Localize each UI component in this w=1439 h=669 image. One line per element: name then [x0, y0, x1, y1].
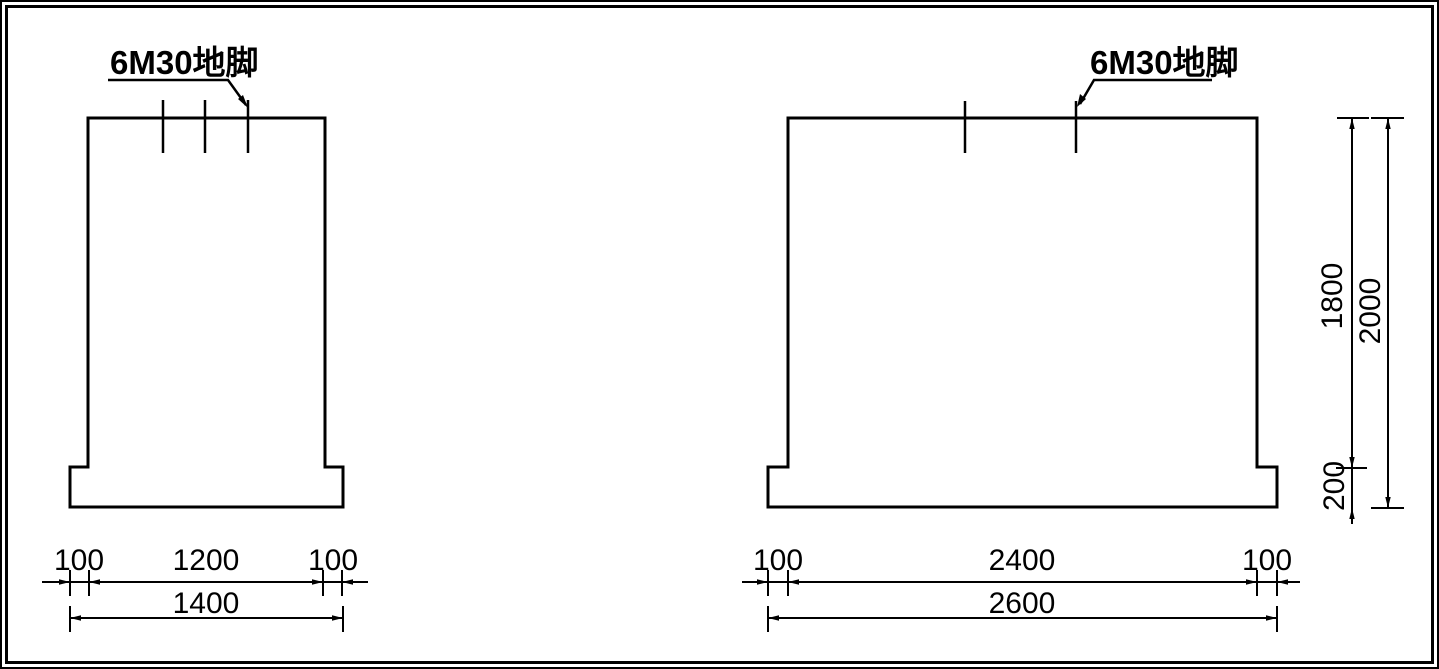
- dim-label-right-100a: 100: [753, 546, 803, 576]
- dim-label-1800: 1800: [1318, 263, 1348, 330]
- right-anchor-bolt-callout: 6M30地脚: [1090, 46, 1239, 79]
- left-callout-leader-line: [108, 80, 246, 105]
- left-anchor-bolt-callout: 6M30地脚: [110, 46, 259, 79]
- dim-label-right-2400: 2400: [989, 546, 1056, 576]
- left-pedestal-outline: [70, 118, 343, 507]
- dim-arrow-icon: [1246, 579, 1257, 585]
- dim-arrow-icon: [59, 579, 70, 585]
- dim-arrow-icon: [757, 579, 768, 585]
- dim-arrow-icon: [342, 579, 353, 585]
- dim-arrow-icon: [1385, 497, 1390, 508]
- dim-arrow-icon: [788, 579, 799, 585]
- right-pedestal-outline: [768, 118, 1277, 507]
- dim-label-200: 200: [1320, 461, 1350, 511]
- dim-arrow-icon: [1266, 615, 1277, 621]
- dim-label-2000: 2000: [1356, 278, 1386, 345]
- dim-label-right-2600: 2600: [989, 589, 1056, 619]
- dim-arrow-icon: [1277, 579, 1288, 585]
- dim-arrow-icon: [70, 615, 81, 621]
- right-callout-leader-line: [1080, 80, 1212, 104]
- dim-label-left-1400: 1400: [173, 589, 240, 619]
- dim-arrow-icon: [768, 615, 779, 621]
- dim-label-left-100b: 100: [308, 546, 358, 576]
- dim-label-right-100b: 100: [1242, 546, 1292, 576]
- dim-arrow-icon: [89, 579, 100, 585]
- dim-arrow-icon: [1385, 118, 1390, 129]
- dim-arrow-icon: [312, 579, 323, 585]
- drawing-canvas: 6M30地脚 6M30地脚 100 1200 100 1400 100 2400…: [0, 0, 1439, 669]
- dim-label-left-100a: 100: [54, 546, 104, 576]
- dim-arrow-icon: [1349, 118, 1354, 129]
- dim-arrow-icon: [332, 615, 343, 621]
- dim-label-left-1200: 1200: [173, 546, 240, 576]
